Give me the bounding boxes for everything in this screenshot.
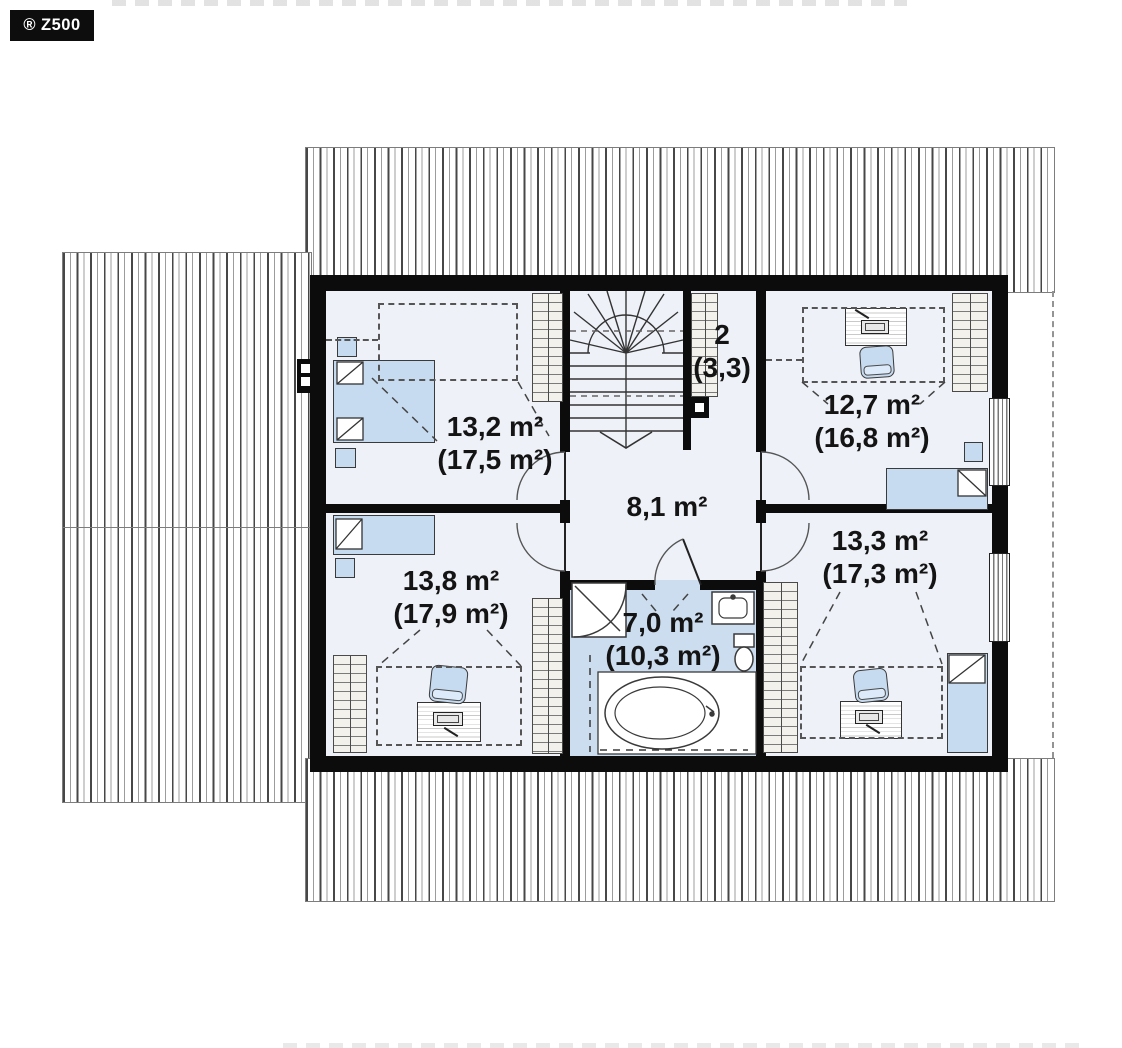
room-area-total: (17,9 m²) bbox=[393, 597, 508, 630]
room-area: 13,2 m² bbox=[437, 410, 552, 443]
ceiling-height-dashed-line bbox=[766, 359, 802, 361]
window bbox=[989, 398, 1010, 486]
brand-label: ® Z500 bbox=[23, 16, 80, 35]
room-number: 2 bbox=[693, 318, 751, 351]
room-area: 13,8 m² bbox=[393, 564, 508, 597]
room-label-bedroom-bottom-right: 13,3 m² (17,3 m²) bbox=[822, 524, 937, 590]
room-area-total: (10,3 m²) bbox=[605, 639, 720, 672]
door-opening-bedroom-bottom-left bbox=[560, 523, 570, 571]
room-area: 13,3 m² bbox=[822, 524, 937, 557]
room-area: 8,1 m² bbox=[627, 490, 708, 523]
wardrobe bbox=[333, 655, 367, 753]
bed bbox=[947, 653, 988, 753]
wardrobe bbox=[532, 598, 563, 754]
room-label-bathroom: 7,0 m² (10,3 m²) bbox=[605, 606, 720, 672]
room-area: 7,0 m² bbox=[605, 606, 720, 639]
door-opening-bathroom bbox=[655, 580, 700, 590]
roof-ridge-line bbox=[63, 527, 311, 528]
door-opening-bedroom-top-left bbox=[560, 452, 570, 500]
door-opening-bedroom-bottom-right bbox=[756, 523, 766, 571]
nightstand bbox=[335, 558, 355, 578]
ceiling-height-dashed-rect bbox=[802, 307, 945, 383]
room-area-total: (17,5 m²) bbox=[437, 443, 552, 476]
ceiling-height-dashed-rect bbox=[376, 666, 522, 746]
duct-shaft bbox=[691, 397, 709, 418]
chimney-flue bbox=[301, 364, 310, 373]
room-area-total: (17,3 m²) bbox=[822, 557, 937, 590]
stairwell-partition-wall bbox=[683, 291, 691, 450]
wardrobe bbox=[763, 582, 798, 753]
roof-plane-top bbox=[305, 147, 1055, 293]
chimney bbox=[297, 359, 317, 393]
room-label-storage: 2 (3,3) bbox=[693, 318, 751, 384]
chimney-flue bbox=[301, 377, 310, 386]
door-opening-bedroom-top-right bbox=[756, 452, 766, 500]
room-label-bedroom-top-right: 12,7 m² (16,8 m²) bbox=[814, 388, 929, 454]
room-area-total: (3,3) bbox=[693, 351, 751, 384]
duct-flue bbox=[695, 403, 704, 412]
room-area: 12,7 m² bbox=[814, 388, 929, 421]
ceiling-height-dashed-rect bbox=[378, 303, 518, 381]
room-label-bedroom-top-left: 13,2 m² (17,5 m²) bbox=[437, 410, 552, 476]
wardrobe bbox=[532, 293, 563, 402]
roof-plane-left bbox=[62, 252, 312, 803]
cropped-text-top bbox=[112, 0, 907, 6]
roof-edge-dashed-line bbox=[1052, 291, 1054, 758]
nightstand bbox=[964, 442, 983, 462]
room-label-hall: 8,1 m² bbox=[627, 490, 708, 523]
window bbox=[989, 553, 1010, 642]
bed bbox=[886, 468, 988, 510]
ceiling-height-dashed-rect bbox=[800, 666, 943, 739]
bed bbox=[333, 515, 435, 555]
ceiling-height-dashed-line bbox=[326, 339, 378, 341]
room-label-bedroom-bottom-left: 13,8 m² (17,9 m²) bbox=[393, 564, 508, 630]
cropped-text-bottom bbox=[283, 1043, 1083, 1048]
floor-plan-canvas: 13,2 m² (17,5 m²) 2 (3,3) 12,7 m² (16,8 … bbox=[0, 0, 1122, 1048]
room-area-total: (16,8 m²) bbox=[814, 421, 929, 454]
roof-plane-bottom bbox=[305, 758, 1055, 902]
room-stairwell bbox=[570, 291, 683, 450]
brand-badge: ® Z500 bbox=[10, 10, 94, 41]
wardrobe bbox=[952, 293, 988, 392]
nightstand bbox=[335, 448, 356, 468]
